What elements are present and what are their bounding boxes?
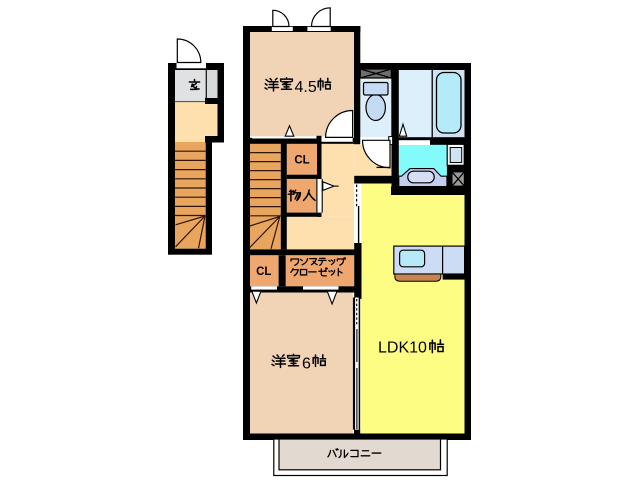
svg-text:LDK10: LDK10 xyxy=(378,340,427,357)
svg-text:4.5: 4.5 xyxy=(295,79,317,96)
svg-text:CL: CL xyxy=(256,266,271,278)
svg-text:CL: CL xyxy=(294,155,309,167)
svg-text:6: 6 xyxy=(302,355,311,372)
